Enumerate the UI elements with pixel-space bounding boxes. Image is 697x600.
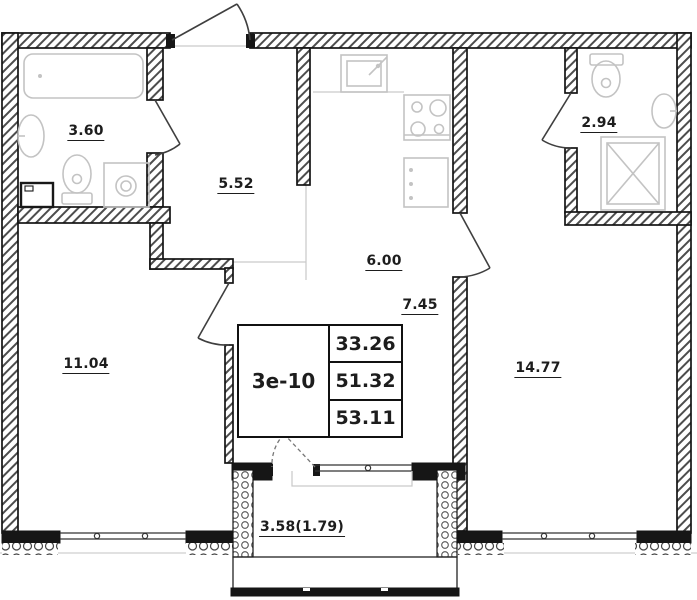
base-cabinet-icon xyxy=(404,158,448,207)
unit-info-table: 3е-10 33.26 51.32 53.11 xyxy=(237,324,403,438)
toilet-icon xyxy=(590,54,623,97)
window-balcony-unit xyxy=(292,465,412,486)
toilet-icon xyxy=(62,155,92,204)
wall-bottom-right-a xyxy=(458,531,502,543)
wall-bottom-right-b xyxy=(637,531,691,543)
balcony-parapet xyxy=(231,588,459,596)
window-room-left xyxy=(60,533,186,539)
unit-code: 3е-10 xyxy=(239,326,330,436)
balcony-parapet-outline xyxy=(233,557,457,590)
balcony-door-swing-dashed xyxy=(272,434,315,467)
wall-kitchen-stub xyxy=(297,48,310,185)
room-area-label-room-left: 11.04 xyxy=(62,356,109,372)
room-area-label-corridor: 7.45 xyxy=(401,297,438,313)
bathroom2-door-swing xyxy=(542,93,571,148)
wall-right xyxy=(677,33,691,533)
room-area-label-room-right: 14.77 xyxy=(514,360,561,376)
wall-top-right xyxy=(250,33,691,48)
balcony-door-jamb-cap xyxy=(266,464,273,476)
floor-plan-drawing xyxy=(0,0,697,600)
kitchen-fixtures xyxy=(341,55,450,207)
balcony-wall-left xyxy=(233,470,253,557)
appliance-zone-icon xyxy=(104,163,149,207)
room-right-door-swing xyxy=(460,213,490,277)
kitchen-sink-icon xyxy=(341,55,387,92)
wall-left xyxy=(2,33,18,533)
balcony-wall-right xyxy=(437,470,457,557)
washbasin-icon xyxy=(18,115,44,157)
bathroom1-door-swing xyxy=(155,100,180,155)
room-left-door-swing xyxy=(198,283,229,345)
room-area-label-balcony: 3.58(1.79) xyxy=(259,519,345,535)
wall-top-left xyxy=(2,33,170,48)
wall-bath1-east-upper xyxy=(147,48,163,100)
windows-layer xyxy=(60,465,637,539)
walls-layer xyxy=(2,33,691,555)
living-area-value: 33.26 xyxy=(330,326,401,363)
floor-plan: 3.60 5.52 2.94 6.00 7.45 11.04 14.77 3.5… xyxy=(0,0,697,600)
shower-icon xyxy=(601,137,665,210)
washbasin-icon xyxy=(652,94,677,128)
wall-room-left-north xyxy=(150,259,233,269)
wall-bath2-west-upper xyxy=(565,48,577,93)
insulation-strip xyxy=(635,543,691,555)
total-area-value: 51.32 xyxy=(330,363,401,400)
total-area-with-balcony-value: 53.11 xyxy=(330,401,401,436)
wall-room-left-east-lower xyxy=(225,345,233,463)
entrance-door-swing xyxy=(172,4,250,40)
window-room-right xyxy=(502,533,637,539)
wall-room-left-east-upper xyxy=(225,268,233,283)
room-area-label-kitchen: 6.00 xyxy=(365,253,402,269)
wall-room-right-west-upper xyxy=(453,48,467,213)
room-area-label-hallway: 5.52 xyxy=(217,176,254,192)
zone-lines xyxy=(170,46,404,280)
room-area-label-bathroom-top-left: 3.60 xyxy=(67,123,104,139)
balcony-parapet-notch xyxy=(303,588,310,591)
wall-bath1-south xyxy=(18,207,170,223)
insulation-strip xyxy=(2,543,58,555)
stove-icon xyxy=(404,95,450,140)
washing-machine-icon xyxy=(21,183,53,207)
bathtub-icon xyxy=(24,54,143,98)
room-area-label-bathroom-top-right: 2.94 xyxy=(580,115,617,131)
insulation-strip xyxy=(458,543,504,555)
wall-bottom-left-a xyxy=(2,531,60,543)
entrance-jamb-cap xyxy=(246,34,255,48)
wall-bath2-south xyxy=(565,212,691,225)
entrance-jamb-cap xyxy=(166,34,175,48)
wall-bath2-west-lower xyxy=(565,148,577,213)
balcony-parapet-notch xyxy=(381,588,388,591)
